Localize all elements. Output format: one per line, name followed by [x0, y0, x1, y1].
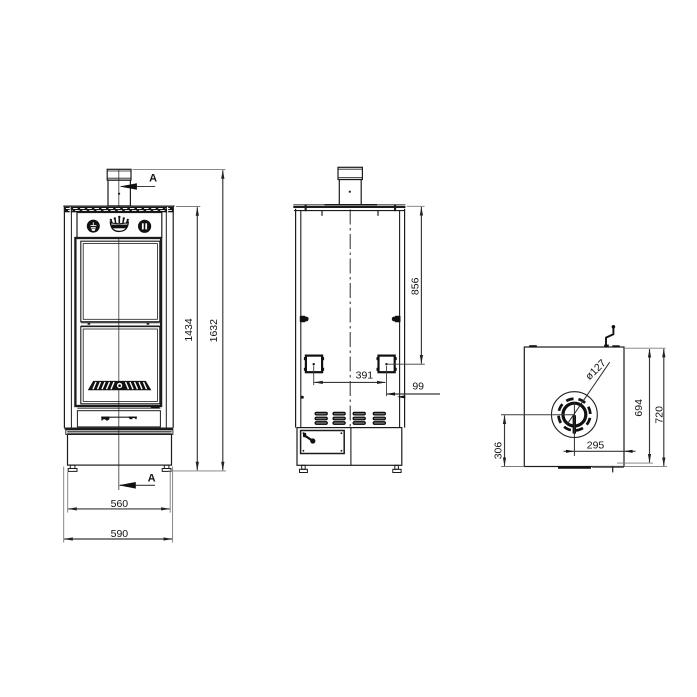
svg-text:99: 99 [412, 380, 424, 392]
svg-text:720: 720 [654, 406, 666, 424]
svg-text:A: A [149, 173, 157, 185]
svg-text:306: 306 [492, 442, 504, 460]
svg-text:856: 856 [410, 277, 422, 295]
svg-text:391: 391 [356, 369, 374, 381]
svg-text:1632: 1632 [208, 319, 220, 343]
svg-text:295: 295 [587, 440, 605, 452]
svg-text:A: A [148, 472, 156, 484]
svg-text:694: 694 [633, 399, 645, 417]
svg-text:560: 560 [111, 498, 129, 510]
svg-text:1434: 1434 [183, 318, 195, 342]
svg-text:590: 590 [111, 528, 129, 540]
